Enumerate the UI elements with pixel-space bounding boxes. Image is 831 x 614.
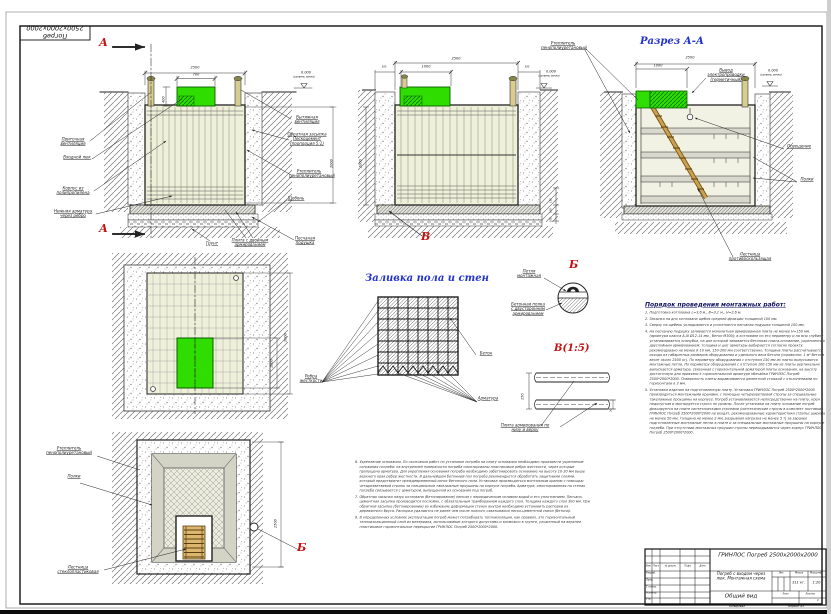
label-ladder-v3: Лестница противоскользящая <box>726 252 774 261</box>
item-num: 4. <box>645 329 648 334</box>
label-shelves-v8: Полки <box>62 474 86 479</box>
titleblock-role-nkontr: Н.контр. <box>646 592 676 595</box>
label-insulation-v3: Утеплитель пенополиуретановый <box>541 41 585 50</box>
titleblock-scale-value: 1:20 <box>807 581 826 585</box>
level-mark-v1: 0.000 <box>296 71 316 75</box>
dim-v1-depth: 2000 <box>330 159 334 168</box>
dim-v2-100b: 100 <box>550 217 553 222</box>
label-concrete-shelf: Бетонная полка с двусторонним армировани… <box>510 302 546 316</box>
dim-detv-30: 30 <box>610 409 613 412</box>
level-mark-v3: 0.000 <box>762 69 784 73</box>
level-note-v3: (уровень земли) <box>756 74 786 77</box>
procedure-item-7: 7.Обратная засыпка пазух котлована (бето… <box>355 495 591 514</box>
titleblock-doc-title: Погреб с входом через люк. Монтажная схе… <box>712 572 770 581</box>
titleblock-product: ГРИНЛОС Погреб 2500x2000x2000 <box>711 552 825 558</box>
titleblock-sheet-header: Лист <box>773 593 798 596</box>
label-insulation-v8: Утеплитель пенополиуретановый <box>46 446 92 455</box>
titleblock-sheets-header: Листов <box>799 593 821 596</box>
section-marker-a-top: А <box>99 36 108 49</box>
item-text: Установка изделия на подготовленную плит… <box>650 388 826 435</box>
label-entry-hatch: Входной люк <box>62 155 92 160</box>
level-mark-v2: 0.000 <box>540 70 562 74</box>
section-marker-v: В <box>421 230 430 243</box>
titleblock-col-date: Дата <box>696 565 709 568</box>
label-lighting: Освещение <box>781 144 817 149</box>
item-num: 5. <box>645 388 648 393</box>
dim-detv-150: 150 <box>521 393 525 400</box>
footer-copied: Копировал <box>722 605 752 608</box>
procedure-item-3: 3.Сверху на щебень укладывается и уплотн… <box>645 323 827 328</box>
procedure-item-2: 2.Засыпка на дно котлована щебня средней… <box>645 317 827 322</box>
titleblock-role-tkontr: Т.контр. <box>646 586 676 589</box>
titleblock-scale-header: Масштаб <box>806 572 826 575</box>
drawing-sheet: Погреб 2500x2000x2000 А А Приточная вент… <box>0 0 831 614</box>
item-num: 3. <box>645 323 648 328</box>
item-text: Засыпка на дно котлована щебня средней ф… <box>650 317 778 321</box>
dim-v2-150: 150 <box>550 198 553 203</box>
titleblock-role-utv: Утв. <box>646 598 676 601</box>
label-shelves-v3: Полки <box>795 177 819 182</box>
detail-marker-b: Б <box>297 541 306 554</box>
label-sand-cushion: Песчаная подушка <box>291 236 319 245</box>
dim-plan-2000: 2000 <box>284 333 288 342</box>
detail-b-title: Б <box>569 258 578 271</box>
view-title-pour: Заливка пола и стен <box>365 273 489 284</box>
footer-format: Формат А3 <box>782 605 810 608</box>
label-insulation-v1: Утеплитель пенополиуретановый <box>289 169 329 178</box>
item-num: 8. <box>355 515 358 520</box>
label-reinf-plate: Плита армирования по низу и верху <box>496 423 554 432</box>
label-concrete: Бетон <box>474 351 498 356</box>
dim-v2-1000: 1000 <box>406 65 446 69</box>
dim-v1-700: 700 <box>178 73 214 77</box>
titleblock-lit-header: Лит. <box>773 572 790 575</box>
titleblock-role-prov: Пров. <box>646 579 676 582</box>
item-num: 1. <box>645 311 648 316</box>
item-text: На песчаную подушку заливается монолитна… <box>650 329 825 385</box>
label-soil: Грунт <box>203 241 221 246</box>
item-text: Подготовка котлована L=3,6 м., В=3,1 м.,… <box>650 311 742 315</box>
titleblock-col-izm: Изм. <box>645 565 652 568</box>
label-bottom-rebar: Нижняя арматура через ребро <box>50 209 96 218</box>
dim-plan-1000: 1000 <box>270 359 274 368</box>
item-text: Укрепление основания. По окончании работ… <box>360 460 586 493</box>
section-marker-a-bottom: А <box>99 222 108 235</box>
label-wiring: Вывод электропроводки (герметичный) <box>702 68 750 82</box>
item-num: 6. <box>355 460 358 465</box>
titleblock-mass-value: 311 кг. <box>789 581 808 585</box>
procedure-item-4: 4.На песчаную подушку заливается монолит… <box>645 329 827 386</box>
procedure-title: Порядок проведения монтажных работ: <box>645 301 827 308</box>
item-num: 2. <box>645 317 648 322</box>
procedure-item-1: 1.Подготовка котлована L=3,6 м., В=3,1 м… <box>645 311 827 316</box>
label-ribs: Ребра жесткости <box>296 374 326 383</box>
label-backfill: Обратная засыпка Пескоцемент (пропорция … <box>286 132 328 146</box>
item-text: Сверху на щебень укладывается и уплотняе… <box>650 323 805 327</box>
item-text: В определенных условиях эксплуатации пог… <box>360 515 582 529</box>
dim-v3-1000: 1000 <box>638 64 678 68</box>
label-gravel: Щебень <box>285 196 307 201</box>
titleblock-sheets-value: 1 <box>812 599 824 602</box>
procedure-column: Порядок проведения монтажных работ: 1.По… <box>645 301 827 437</box>
dim-v2-100a: 100 <box>550 208 553 213</box>
item-num: 7. <box>355 495 358 500</box>
dim-v2-300l: 300 <box>373 66 395 69</box>
view-title-razrez-aa: Разрез А-А <box>640 36 704 47</box>
item-text: Обратная засыпка пазух котлована (бетони… <box>360 495 590 513</box>
titleblock-col-doc: № докум. <box>661 565 680 568</box>
dim-v1-400: 400 <box>162 96 166 103</box>
label-ladder-v8: Лестница стеклопластиковая <box>54 565 102 574</box>
titleblock-view-name: Общий вид <box>711 593 771 599</box>
titleblock-role-razrab: Разраб. <box>646 572 676 575</box>
titleblock-col-list: Лист <box>652 565 660 568</box>
dim-v2-2000: 2000 <box>359 159 363 168</box>
dim-v1-2500: 2500 <box>170 66 220 70</box>
label-exhaust-vent: Вытяжная вентиляция <box>289 115 325 124</box>
dim-v2-300r: 300 <box>516 66 538 69</box>
procedure-item-5: 5.Установка изделия на подготовленную пл… <box>645 388 827 436</box>
label-slab: Плита с двойным армированием <box>230 238 270 247</box>
procedure-item-8: 8.В определенных условиях эксплуатации п… <box>355 515 591 529</box>
procedure-item-6: 6.Укрепление основания. По окончании раб… <box>355 460 591 493</box>
label-rebar: Арматура <box>473 396 503 401</box>
detail-v-title: В(1:5) <box>554 343 590 354</box>
dim-v2-2500: 2500 <box>431 57 481 61</box>
label-mounting-loop: Петля монтажная <box>514 269 544 278</box>
level-note-v1: (уровень земли) <box>290 76 318 79</box>
procedure-bottom: 6.Укрепление основания. По окончании раб… <box>355 460 591 531</box>
dim-v8-2500: 2500 <box>274 519 278 528</box>
label-body-material: Корпус из полипропилена <box>52 186 94 195</box>
level-note-v2: (уровень земли) <box>534 75 564 78</box>
dim-v3-2500: 2500 <box>670 56 710 60</box>
frame-stamp: Погреб 2500x2000x2000 <box>20 26 90 40</box>
titleblock-col-sign: Подп. <box>681 565 695 568</box>
label-supply-vent: Приточная вентиляция <box>56 137 90 146</box>
